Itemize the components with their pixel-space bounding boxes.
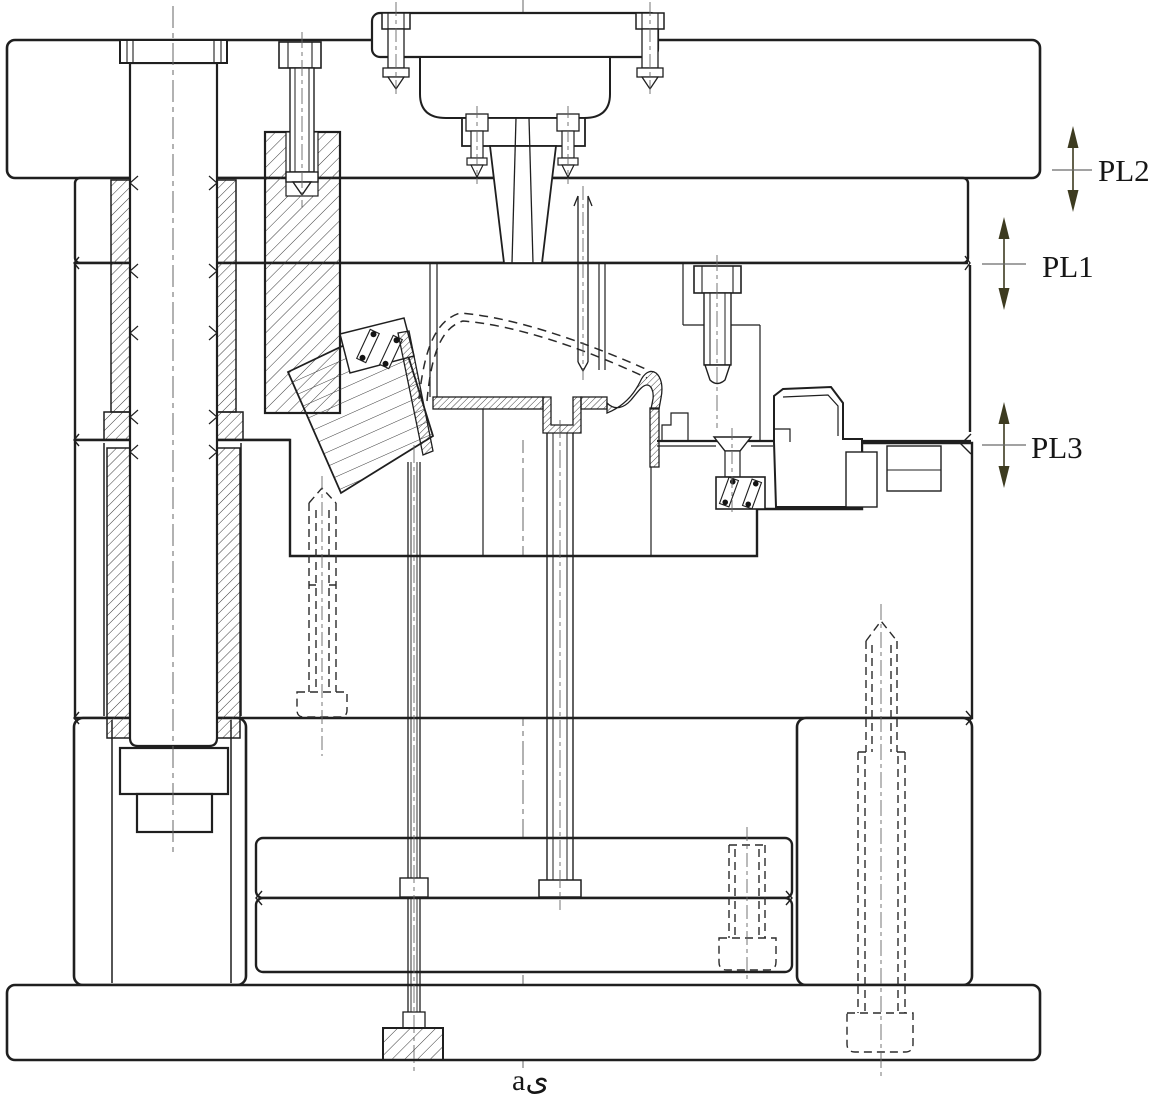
mold-assembly-drawing: PL2 PL1 PL3 aى bbox=[0, 0, 1149, 1098]
ejector-retainer-plate bbox=[256, 838, 792, 898]
parting-line-label-pl3: PL3 bbox=[1031, 430, 1083, 465]
ejector-base-plate bbox=[256, 898, 792, 972]
figure-caption: aى bbox=[512, 1064, 549, 1097]
pillar-foot-lower bbox=[137, 794, 212, 832]
drawing-canvas: PL2 PL1 PL3 aى bbox=[0, 0, 1149, 1098]
pillar-foot-upper bbox=[120, 748, 228, 794]
right-spacer-rail bbox=[797, 718, 972, 985]
parting-line-label-pl2: PL2 bbox=[1098, 153, 1149, 188]
parting-line-label-pl1: PL1 bbox=[1042, 249, 1094, 284]
bottom-clamp-plate bbox=[7, 985, 1040, 1060]
ejector-stop-block bbox=[383, 1028, 443, 1060]
slide-gib bbox=[887, 446, 941, 491]
